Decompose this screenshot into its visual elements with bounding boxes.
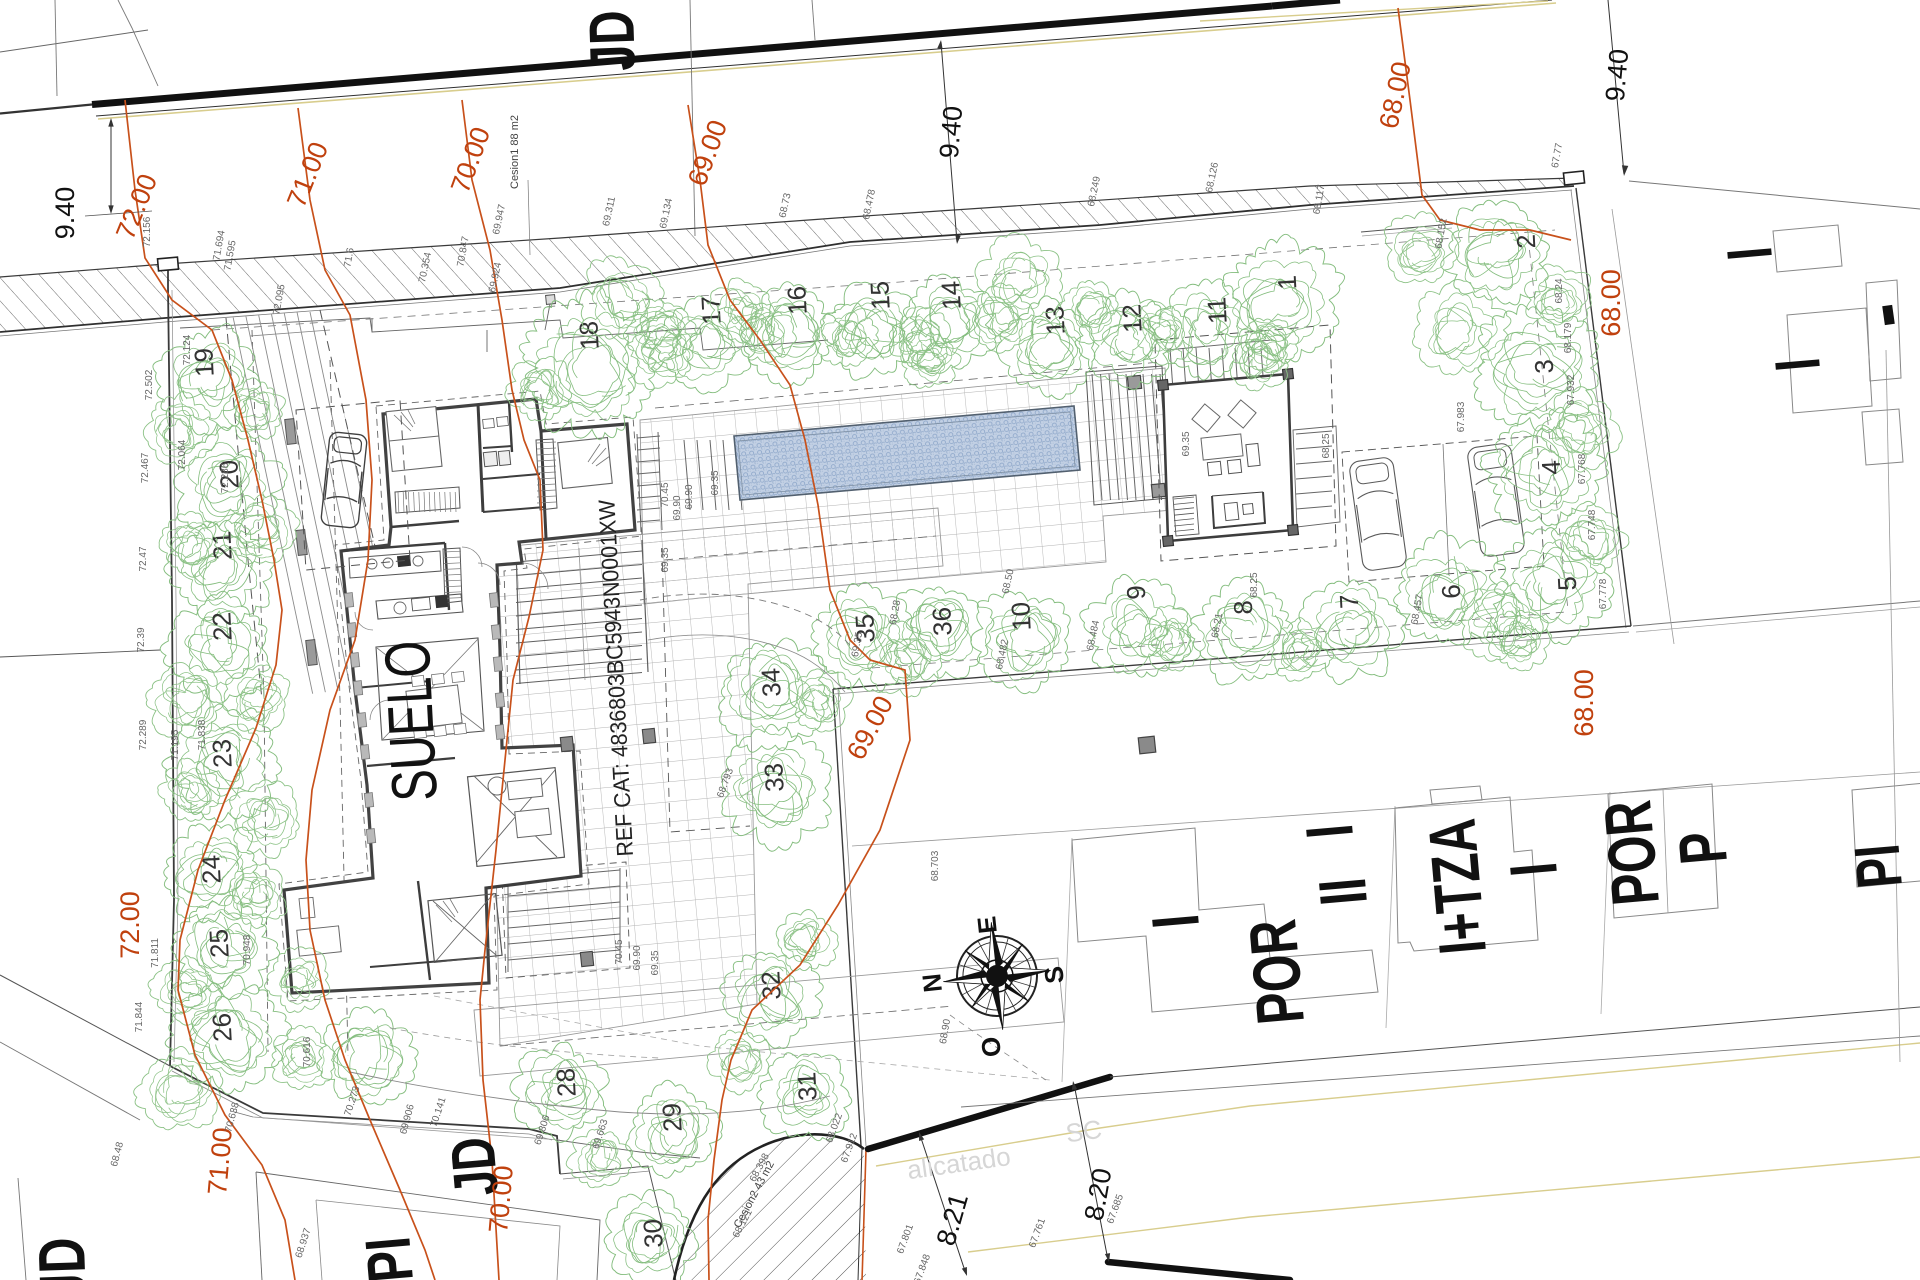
svg-text:68.703: 68.703: [930, 850, 941, 881]
svg-text:67.778: 67.778: [1598, 578, 1609, 609]
svg-text:70.616: 70.616: [302, 1036, 313, 1067]
svg-text:S: S: [1038, 965, 1070, 985]
svg-text:10: 10: [1005, 601, 1036, 631]
svg-text:18: 18: [573, 320, 604, 350]
svg-text:9: 9: [1121, 584, 1152, 600]
svg-text:72.289: 72.289: [138, 719, 149, 750]
svg-text:69.35: 69.35: [660, 547, 671, 572]
svg-text:72.39: 72.39: [136, 627, 147, 652]
svg-text:26: 26: [206, 1012, 237, 1042]
svg-text:68.25: 68.25: [1321, 433, 1332, 458]
svg-text:7: 7: [1334, 593, 1365, 609]
svg-text:31: 31: [791, 1071, 822, 1101]
svg-text:70.45: 70.45: [660, 482, 671, 507]
svg-text:POR: POR: [1235, 917, 1318, 1028]
svg-text:69.90: 69.90: [632, 945, 643, 970]
svg-text:8: 8: [1228, 599, 1259, 615]
svg-text:15: 15: [864, 280, 895, 310]
svg-text:29: 29: [656, 1102, 687, 1132]
svg-text:28: 28: [550, 1067, 581, 1097]
svg-text:69.35: 69.35: [710, 470, 721, 495]
svg-text:6: 6: [1436, 583, 1467, 599]
svg-text:68.25: 68.25: [1249, 572, 1260, 597]
svg-text:72.064: 72.064: [177, 439, 188, 470]
svg-text:68.00: 68.00: [1569, 669, 1599, 737]
svg-text:PI: PI: [351, 1234, 426, 1280]
svg-text:9.40: 9.40: [934, 105, 968, 160]
svg-text:34: 34: [755, 667, 786, 697]
svg-text:68.179: 68.179: [1563, 322, 1574, 353]
svg-text:N: N: [916, 972, 948, 994]
svg-text:24: 24: [195, 854, 226, 884]
svg-text:11: 11: [1201, 296, 1232, 325]
svg-text:67.748: 67.748: [1587, 509, 1598, 540]
svg-text:I+TZA: I+TZA: [1415, 816, 1501, 957]
svg-text:23: 23: [206, 738, 237, 768]
svg-text:72.124: 72.124: [182, 334, 193, 365]
svg-text:30: 30: [637, 1218, 668, 1248]
svg-text:JD: JD: [25, 1236, 101, 1280]
svg-text:O: O: [975, 1035, 1007, 1058]
svg-text:70.00: 70.00: [483, 1164, 519, 1234]
svg-text:67.932: 67.932: [1566, 374, 1577, 405]
svg-text:32: 32: [755, 970, 786, 1000]
svg-text:POR: POR: [1590, 798, 1673, 909]
svg-text:Cesion1 88 m2: Cesion1 88 m2: [509, 115, 521, 189]
svg-text:16: 16: [781, 285, 812, 315]
svg-text:9.40: 9.40: [1600, 48, 1634, 103]
svg-text:SUELO: SUELO: [371, 639, 451, 803]
svg-text:2: 2: [1511, 233, 1542, 249]
svg-text:70.45: 70.45: [614, 939, 625, 964]
svg-text:JD: JD: [575, 9, 649, 72]
svg-text:72.502: 72.502: [144, 369, 155, 400]
svg-text:72.156: 72.156: [142, 216, 153, 247]
svg-text:68.24: 68.24: [1554, 278, 1565, 303]
svg-text:72.00: 72.00: [115, 891, 145, 959]
svg-text:36: 36: [926, 606, 957, 636]
svg-text:25: 25: [203, 928, 234, 958]
svg-text:22: 22: [206, 611, 237, 641]
svg-text:SC: SC: [1064, 1114, 1104, 1149]
svg-text:71.838: 71.838: [197, 719, 208, 750]
svg-text:69.90: 69.90: [672, 495, 683, 520]
svg-text:9.40: 9.40: [50, 187, 80, 240]
svg-text:P: P: [1665, 829, 1742, 868]
svg-text:71.00: 71.00: [202, 1126, 238, 1196]
svg-text:33: 33: [758, 762, 789, 792]
svg-text:71.195: 71.195: [170, 729, 181, 760]
svg-text:PI: PI: [1841, 841, 1916, 891]
svg-text:71.844: 71.844: [134, 1001, 145, 1032]
svg-text:69.90: 69.90: [684, 484, 695, 509]
svg-text:72.467: 72.467: [140, 452, 151, 483]
svg-text:70.948: 70.948: [242, 934, 253, 965]
svg-text:72.286: 72.286: [220, 462, 231, 493]
svg-text:3: 3: [1529, 358, 1560, 374]
svg-text:1: 1: [1272, 274, 1303, 290]
svg-text:69.35: 69.35: [650, 950, 661, 975]
svg-text:14: 14: [935, 280, 966, 310]
svg-text:71.811: 71.811: [150, 938, 161, 968]
svg-text:4: 4: [1536, 459, 1567, 475]
svg-text:72.47: 72.47: [138, 546, 149, 571]
svg-text:67.768: 67.768: [1577, 453, 1588, 484]
svg-text:E: E: [971, 915, 1003, 935]
svg-text:67.983: 67.983: [1456, 401, 1467, 432]
svg-text:69.35: 69.35: [1181, 431, 1192, 456]
svg-text:68.00: 68.00: [1596, 269, 1626, 337]
